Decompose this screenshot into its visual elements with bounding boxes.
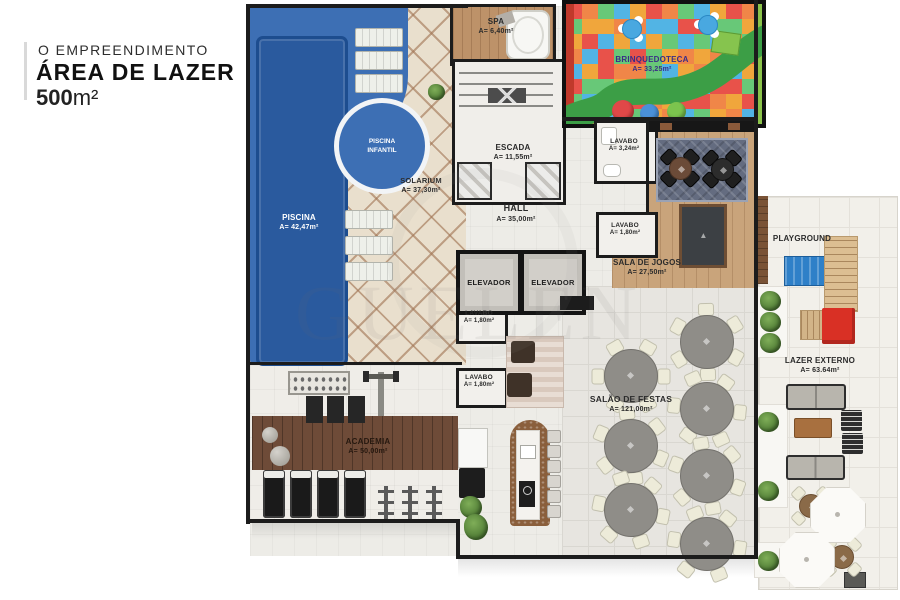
bush <box>758 551 779 571</box>
weight-station <box>402 486 418 522</box>
lounge-table <box>511 341 535 363</box>
bar-worktop <box>516 430 540 520</box>
pool-table <box>679 204 727 268</box>
lavabo-hall-2-label: LAVABOA= 1,80m² <box>455 374 503 390</box>
weight-plate <box>393 371 399 382</box>
weight-station <box>378 486 394 522</box>
weight-plate <box>363 371 369 382</box>
salao-de-festas-label: SALÃO DE FESTASA= 121,00m² <box>586 394 676 414</box>
wall <box>246 362 462 365</box>
table <box>604 419 658 473</box>
bar-stool <box>547 430 561 443</box>
wall <box>562 117 758 121</box>
dumbbell-rack <box>288 371 350 395</box>
escada-room <box>452 59 566 205</box>
outdoor-chair <box>842 433 863 454</box>
treadmill <box>344 470 366 518</box>
bush <box>758 481 779 501</box>
wall-stub <box>560 296 594 310</box>
wall <box>646 120 649 215</box>
bar-stool <box>547 445 561 458</box>
bar-stool <box>547 505 561 518</box>
sun-lounger <box>345 210 393 229</box>
exercise-ball <box>270 446 290 466</box>
lavabo-spa-label: LAVABOA= 3,24m² <box>598 138 650 154</box>
wall <box>754 0 758 558</box>
piscina-label: PISCINAA= 42,47m² <box>262 213 336 232</box>
stair-hatch-right <box>525 162 561 200</box>
table <box>680 315 734 369</box>
page-title: ÁREA DE LAZER <box>36 59 235 86</box>
bar-sink <box>520 445 536 459</box>
piscina-pool <box>256 36 348 366</box>
floorplan-page: O EMPREENDIMENTO ÁREA DE LAZER 500m² PIS… <box>0 0 900 600</box>
brinquedoteca-label: BRINQUEDOTECAA= 33,25m² <box>600 55 704 74</box>
table <box>680 382 734 436</box>
chair <box>733 404 748 421</box>
toilet <box>603 164 621 177</box>
spa-label: SPAA= 6,40m² <box>468 17 524 36</box>
bush <box>758 412 779 432</box>
sun-lounger <box>345 236 393 255</box>
bush <box>428 84 445 100</box>
wall <box>246 4 250 524</box>
table-with-chairs <box>695 142 747 194</box>
shadow <box>252 523 460 539</box>
gym-mat <box>327 396 344 423</box>
bar-stool <box>547 490 561 503</box>
escada-label: ESCADAA= 11,55m² <box>478 143 548 162</box>
table-with-chairs <box>587 466 673 552</box>
wall <box>456 519 460 559</box>
wall <box>246 4 468 8</box>
playground-label: PLAYGROUND <box>766 234 838 244</box>
bush <box>760 312 781 332</box>
outdoor-chair <box>841 410 862 431</box>
climbing-frame <box>824 236 858 312</box>
total-area: 500m² <box>36 85 98 111</box>
lavabo-jogos-label: LAVABOA= 1,80m² <box>599 222 651 238</box>
project-kicker: O EMPREENDIMENTO <box>38 42 209 58</box>
sun-lounger <box>355 74 403 93</box>
play-platform <box>800 310 824 340</box>
fridge <box>459 468 485 498</box>
sun-lounger <box>345 262 393 281</box>
solarium-label: SOLARIUMA= 37,30m² <box>382 176 460 195</box>
gym-mat <box>306 396 323 423</box>
lounge-table <box>507 373 532 397</box>
table <box>669 157 692 180</box>
sofa <box>786 384 846 410</box>
title-accent-bar <box>24 42 27 100</box>
table <box>680 517 734 571</box>
total-area-number: 500 <box>36 85 73 110</box>
sala-de-jogos-label: SALA DE JOGOSA= 27,50m² <box>608 258 686 277</box>
weight-station <box>426 486 442 522</box>
table <box>604 483 658 537</box>
total-area-unit: m² <box>73 85 99 110</box>
lazer-externo-label: LAZER EXTERNOA= 63.64m² <box>782 356 858 375</box>
elevator-1: ELEVADOR <box>456 250 522 315</box>
table <box>680 449 734 503</box>
table-with-chairs <box>663 500 749 586</box>
barbell <box>366 374 396 379</box>
slide <box>784 256 826 286</box>
umbrella <box>779 532 835 588</box>
treadmill <box>290 470 312 518</box>
bar-cooktop <box>519 481 535 507</box>
bar-stool <box>547 460 561 473</box>
play-cube <box>822 308 855 344</box>
chair <box>698 302 714 315</box>
wall <box>456 555 758 559</box>
table <box>711 158 734 181</box>
coffee-table <box>794 418 832 438</box>
shelf <box>660 123 672 130</box>
hall-label: HALLA= 35,00m² <box>486 203 546 224</box>
treadmill <box>317 470 339 518</box>
cabinet <box>458 428 488 468</box>
lavabo-hall-1-label: LAVABOA= 1,80m² <box>455 310 503 326</box>
sun-lounger <box>355 28 403 47</box>
treadmill <box>263 470 285 518</box>
sun-lounger <box>355 51 403 70</box>
wall <box>246 519 460 523</box>
bar-stool <box>547 475 561 488</box>
exercise-ball <box>262 427 278 443</box>
bar-counter <box>510 420 550 526</box>
stair-core <box>488 88 526 103</box>
bush <box>760 333 781 353</box>
bush <box>760 291 781 311</box>
stair-hatch-left <box>457 162 492 200</box>
chair <box>592 368 605 384</box>
shelf <box>728 123 740 130</box>
academia-label: ACADEMIAA= 50,00m² <box>324 437 412 456</box>
gym-mat <box>348 396 365 423</box>
